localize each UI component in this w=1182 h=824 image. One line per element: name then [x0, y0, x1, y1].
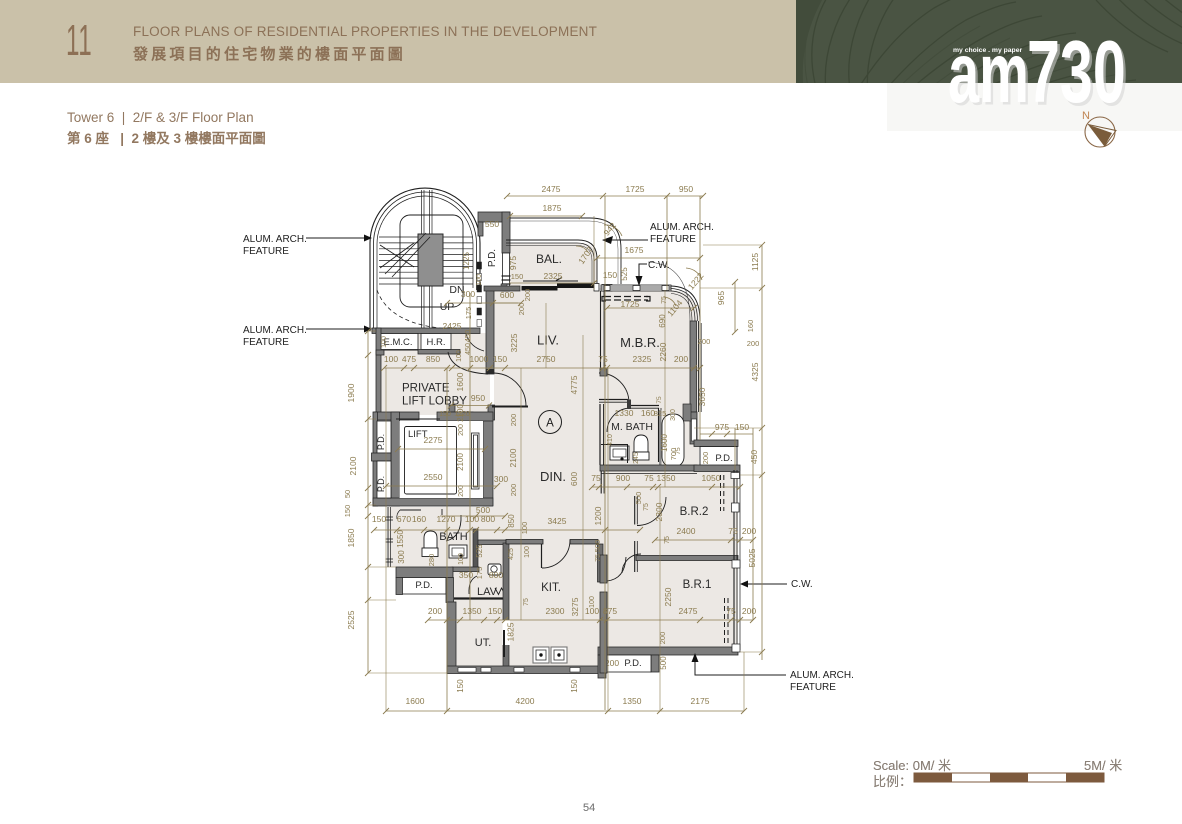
svg-text:850: 850: [426, 354, 440, 364]
svg-text:M.B.R.: M.B.R.: [620, 335, 660, 350]
svg-text:100: 100: [384, 354, 398, 364]
svg-text:100: 100: [589, 596, 596, 608]
svg-text:100: 100: [458, 553, 465, 565]
svg-text:245: 245: [633, 452, 640, 464]
svg-text:425: 425: [508, 548, 515, 560]
svg-text:1225: 1225: [462, 252, 471, 270]
svg-text:75: 75: [643, 503, 650, 511]
svg-text:1000: 1000: [470, 354, 489, 364]
svg-text:1125: 1125: [750, 253, 760, 272]
svg-text:150: 150: [372, 514, 386, 524]
svg-text:1725: 1725: [626, 184, 645, 194]
svg-text:UT.: UT.: [475, 637, 492, 649]
svg-text:450: 450: [749, 450, 759, 464]
svg-text:ALUM. ARCH.: ALUM. ARCH.: [650, 222, 714, 233]
svg-text:2275: 2275: [424, 435, 443, 445]
svg-text:75: 75: [728, 526, 738, 536]
svg-text:5M/ 米: 5M/ 米: [1084, 758, 1122, 773]
svg-text:1875: 1875: [543, 203, 562, 213]
svg-text:2400: 2400: [677, 526, 696, 536]
svg-text:75: 75: [664, 536, 671, 544]
svg-text:300: 300: [670, 409, 677, 421]
svg-text:150: 150: [570, 679, 579, 693]
svg-text:P.D.: P.D.: [376, 476, 386, 492]
svg-text:100: 100: [381, 336, 388, 348]
svg-text:150: 150: [493, 354, 507, 364]
svg-text:280: 280: [427, 554, 436, 567]
svg-text:200: 200: [674, 354, 688, 364]
svg-text:BAL.: BAL.: [536, 252, 562, 266]
svg-text:550: 550: [485, 219, 499, 229]
svg-text:1330: 1330: [615, 408, 634, 418]
svg-text:DIN.: DIN.: [540, 469, 566, 484]
svg-text:100: 100: [476, 274, 483, 286]
svg-text:500: 500: [476, 505, 490, 515]
svg-text:100: 100: [465, 514, 479, 524]
svg-text:1725: 1725: [621, 299, 640, 309]
svg-text:1350: 1350: [623, 696, 642, 706]
svg-text:200: 200: [742, 606, 756, 616]
svg-text:P.D.: P.D.: [376, 434, 386, 450]
svg-text:200: 200: [458, 424, 465, 436]
svg-text:ALUM. ARCH.: ALUM. ARCH.: [243, 234, 307, 245]
svg-text:200: 200: [658, 632, 667, 645]
svg-text:150: 150: [735, 422, 749, 432]
svg-text:Scale: 0M/ 米: Scale: 0M/ 米: [873, 758, 951, 773]
svg-text:2100: 2100: [456, 453, 465, 471]
svg-text:950: 950: [679, 184, 693, 194]
svg-text:1825: 1825: [506, 622, 516, 641]
svg-text:200: 200: [509, 414, 518, 427]
svg-text:3650: 3650: [697, 387, 707, 406]
svg-text:B.R.1: B.R.1: [683, 579, 712, 591]
svg-text:1050: 1050: [702, 473, 721, 483]
svg-text:150: 150: [488, 606, 502, 616]
svg-text:4200: 4200: [516, 696, 535, 706]
svg-text:P.D.: P.D.: [624, 658, 641, 669]
svg-text:ALUM. ARCH.: ALUM. ARCH.: [243, 325, 307, 336]
svg-text:2475: 2475: [542, 184, 561, 194]
svg-text:690: 690: [658, 314, 667, 328]
svg-text:3275: 3275: [570, 597, 580, 616]
svg-text:600: 600: [500, 290, 514, 300]
svg-text:965: 965: [716, 291, 726, 305]
svg-text:670: 670: [397, 514, 411, 524]
svg-text:2550: 2550: [424, 472, 443, 482]
svg-text:C.W.: C.W.: [791, 579, 813, 590]
svg-text:P.D.: P.D.: [415, 580, 432, 591]
svg-text:1222: 1222: [686, 270, 706, 291]
svg-text:2175: 2175: [691, 696, 710, 706]
svg-text:75: 75: [644, 473, 654, 483]
svg-text:2475: 2475: [679, 606, 698, 616]
svg-text:200: 200: [458, 485, 465, 497]
svg-text:300: 300: [461, 289, 475, 299]
svg-text:350: 350: [459, 570, 473, 580]
svg-text:175: 175: [475, 567, 484, 580]
svg-text:150: 150: [343, 505, 352, 518]
svg-text:200: 200: [747, 339, 760, 348]
svg-text:B.R.2: B.R.2: [680, 506, 709, 518]
svg-text:75: 75: [523, 598, 530, 606]
svg-text:1600: 1600: [406, 696, 425, 706]
svg-text:100: 100: [520, 522, 529, 535]
svg-text:200: 200: [742, 526, 756, 536]
svg-text:800: 800: [481, 514, 495, 524]
svg-text:2100: 2100: [348, 456, 358, 475]
svg-text:200: 200: [517, 303, 526, 316]
svg-text:75: 75: [726, 606, 736, 616]
svg-text:450: 450: [465, 343, 472, 355]
svg-text:LIV.: LIV.: [537, 333, 559, 348]
svg-text:200: 200: [701, 452, 710, 465]
svg-text:FEATURE: FEATURE: [243, 337, 289, 348]
svg-text:150: 150: [511, 272, 524, 281]
svg-text:3425: 3425: [548, 516, 567, 526]
svg-text:1600: 1600: [660, 434, 669, 452]
svg-text:950: 950: [471, 393, 485, 403]
svg-text:500: 500: [634, 492, 643, 505]
svg-text:FEATURE: FEATURE: [790, 682, 836, 693]
svg-text:600: 600: [569, 472, 579, 486]
svg-text:900: 900: [616, 473, 630, 483]
svg-text:1550: 1550: [396, 530, 405, 548]
svg-text:KIT.: KIT.: [541, 582, 561, 594]
svg-text:975: 975: [508, 256, 518, 270]
svg-text:1200: 1200: [593, 506, 603, 525]
svg-text:975: 975: [715, 422, 729, 432]
svg-text:比例：: 比例：: [873, 774, 912, 789]
svg-text:525: 525: [475, 544, 484, 558]
svg-text:160: 160: [746, 320, 755, 333]
svg-text:450: 450: [463, 330, 472, 343]
svg-text:PRIVATE: PRIVATE: [402, 383, 450, 395]
svg-text:P.D.: P.D.: [487, 249, 498, 267]
svg-text:200: 200: [509, 484, 518, 497]
svg-text:825: 825: [654, 409, 667, 418]
svg-text:2100: 2100: [508, 448, 518, 467]
svg-text:100: 100: [524, 546, 531, 558]
svg-text:150: 150: [439, 411, 451, 418]
svg-text:C.W.: C.W.: [648, 260, 670, 271]
svg-text:4775: 4775: [569, 375, 579, 394]
svg-text:P.D.: P.D.: [715, 453, 732, 464]
svg-text:200: 200: [523, 289, 532, 302]
svg-text:1850: 1850: [346, 528, 356, 547]
svg-text:A: A: [546, 418, 554, 430]
svg-text:500: 500: [593, 540, 602, 553]
svg-text:FEATURE: FEATURE: [243, 246, 289, 257]
svg-text:1350: 1350: [657, 473, 676, 483]
svg-text:475: 475: [402, 354, 416, 364]
svg-text:4325: 4325: [750, 362, 760, 381]
svg-text:5025: 5025: [747, 548, 757, 567]
svg-text:1350: 1350: [463, 606, 482, 616]
svg-text:300: 300: [494, 474, 508, 484]
svg-text:2325: 2325: [544, 271, 563, 281]
svg-text:50: 50: [343, 490, 352, 498]
svg-text:2425: 2425: [443, 321, 462, 331]
svg-text:2260: 2260: [658, 342, 668, 361]
svg-text:1220: 1220: [454, 411, 470, 418]
svg-text:M. BATH: M. BATH: [611, 421, 653, 433]
svg-text:75: 75: [595, 554, 602, 562]
svg-text:FEATURE: FEATURE: [650, 234, 696, 245]
svg-text:1270: 1270: [437, 514, 456, 524]
svg-text:300: 300: [397, 550, 406, 564]
svg-text:1600: 1600: [455, 372, 465, 391]
svg-text:2300: 2300: [654, 502, 664, 521]
svg-text:75: 75: [598, 354, 608, 364]
svg-text:3225: 3225: [509, 333, 519, 352]
svg-text:800: 800: [489, 570, 503, 580]
svg-text:175: 175: [464, 307, 473, 320]
svg-text:150: 150: [456, 679, 465, 693]
svg-text:2325: 2325: [633, 354, 652, 364]
svg-text:850: 850: [507, 514, 516, 528]
svg-text:1900: 1900: [346, 383, 356, 402]
svg-text:2250: 2250: [663, 587, 673, 606]
svg-text:ALUM. ARCH.: ALUM. ARCH.: [790, 670, 854, 681]
svg-text:500: 500: [659, 656, 668, 670]
svg-text:2300: 2300: [546, 606, 565, 616]
svg-text:75: 75: [675, 447, 682, 455]
svg-text:75: 75: [656, 396, 663, 404]
svg-text:LAV: LAV: [477, 586, 498, 598]
svg-text:160: 160: [412, 514, 426, 524]
svg-text:2525: 2525: [346, 610, 356, 629]
svg-text:75: 75: [591, 473, 601, 483]
svg-text:1675: 1675: [625, 245, 644, 255]
svg-text:525: 525: [620, 267, 629, 281]
svg-text:100: 100: [456, 350, 463, 362]
svg-text:H.R.: H.R.: [427, 337, 446, 348]
svg-text:200: 200: [428, 606, 442, 616]
